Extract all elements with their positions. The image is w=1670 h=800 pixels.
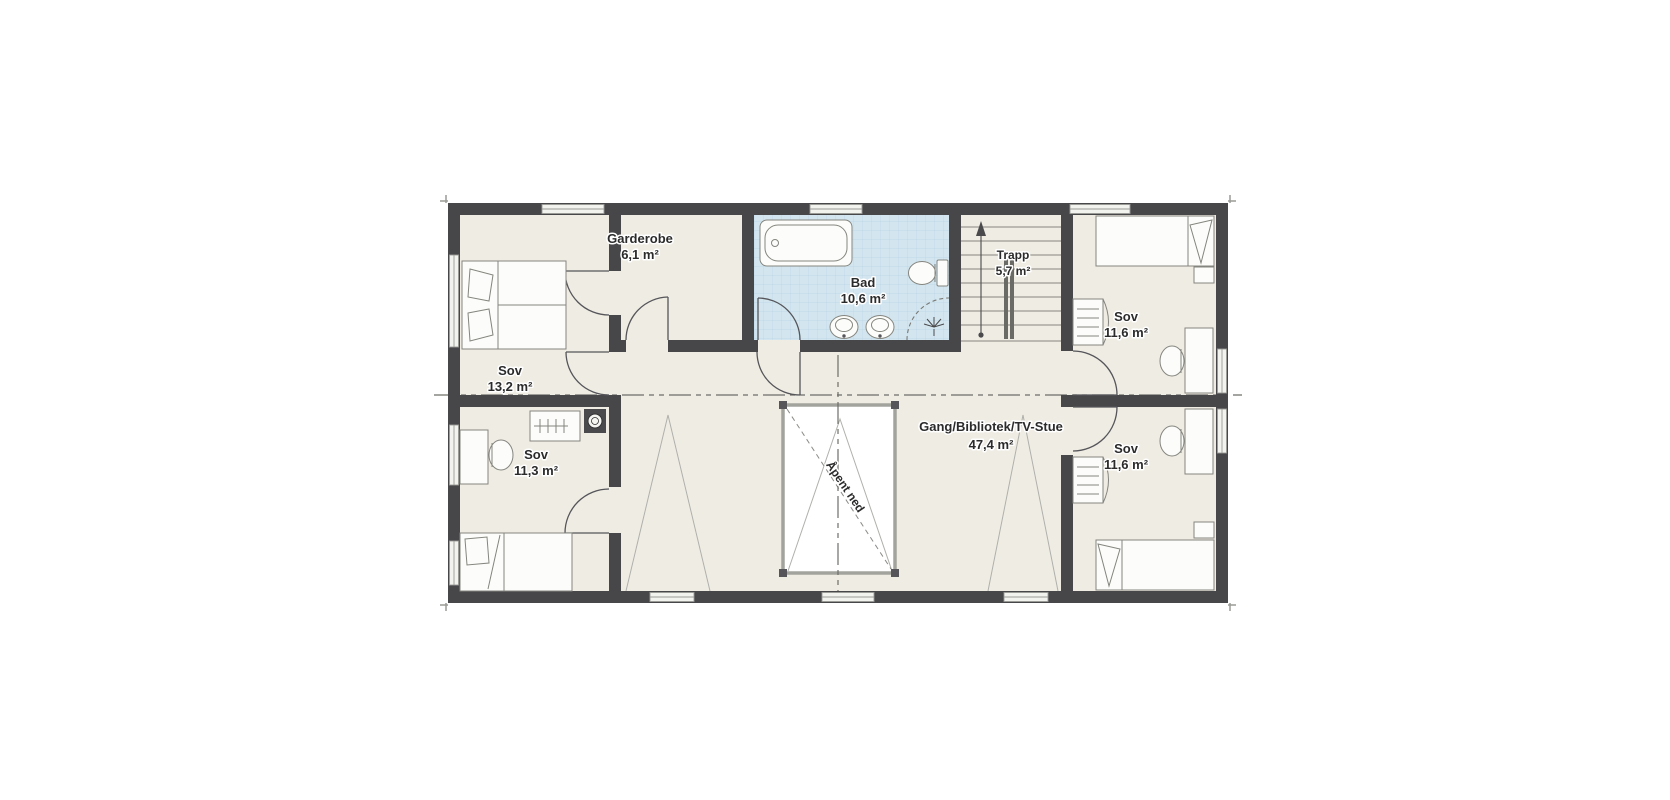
bathtub — [760, 220, 852, 266]
room-label: Trapp — [997, 248, 1030, 262]
chair — [1160, 346, 1184, 376]
room-area: 11,6 m² — [1104, 457, 1149, 472]
nightstand — [1194, 267, 1214, 283]
room-area: 10,6 m² — [841, 291, 886, 306]
toilet — [909, 260, 949, 286]
single-bed — [460, 533, 572, 591]
double-bed — [462, 261, 566, 349]
room-label: Sov — [1114, 309, 1139, 324]
room-label: Gang/Bibliotek/TV-Stue — [919, 419, 1063, 434]
chair — [1160, 426, 1184, 456]
room-area: 11,6 m² — [1104, 325, 1149, 340]
desk — [1185, 409, 1213, 474]
chimney — [584, 409, 606, 433]
room-area: 47,4 m² — [969, 437, 1014, 452]
room-label: Sov — [524, 447, 549, 462]
floor-plan: Sov 13,2 m² Garderobe 6,1 m² Bad 10,6 m²… — [448, 203, 1228, 603]
room-area: 11,3 m² — [514, 463, 559, 478]
room-area: 13,2 m² — [488, 379, 533, 394]
sink — [866, 316, 894, 339]
nightstand — [1194, 522, 1214, 538]
page-canvas: Sov 13,2 m² Garderobe 6,1 m² Bad 10,6 m²… — [0, 0, 1670, 800]
room-area: 6,1 m² — [621, 247, 659, 262]
sink — [830, 316, 858, 339]
wardrobe — [530, 411, 580, 441]
desk — [460, 430, 488, 484]
chair — [489, 440, 513, 470]
desk — [1185, 328, 1213, 393]
room-label: Garderobe — [607, 231, 673, 246]
room-label: Bad — [851, 275, 876, 290]
room-area: 5,7 m² — [996, 264, 1031, 278]
room-label: Sov — [1114, 441, 1139, 456]
room-label: Sov — [498, 363, 523, 378]
